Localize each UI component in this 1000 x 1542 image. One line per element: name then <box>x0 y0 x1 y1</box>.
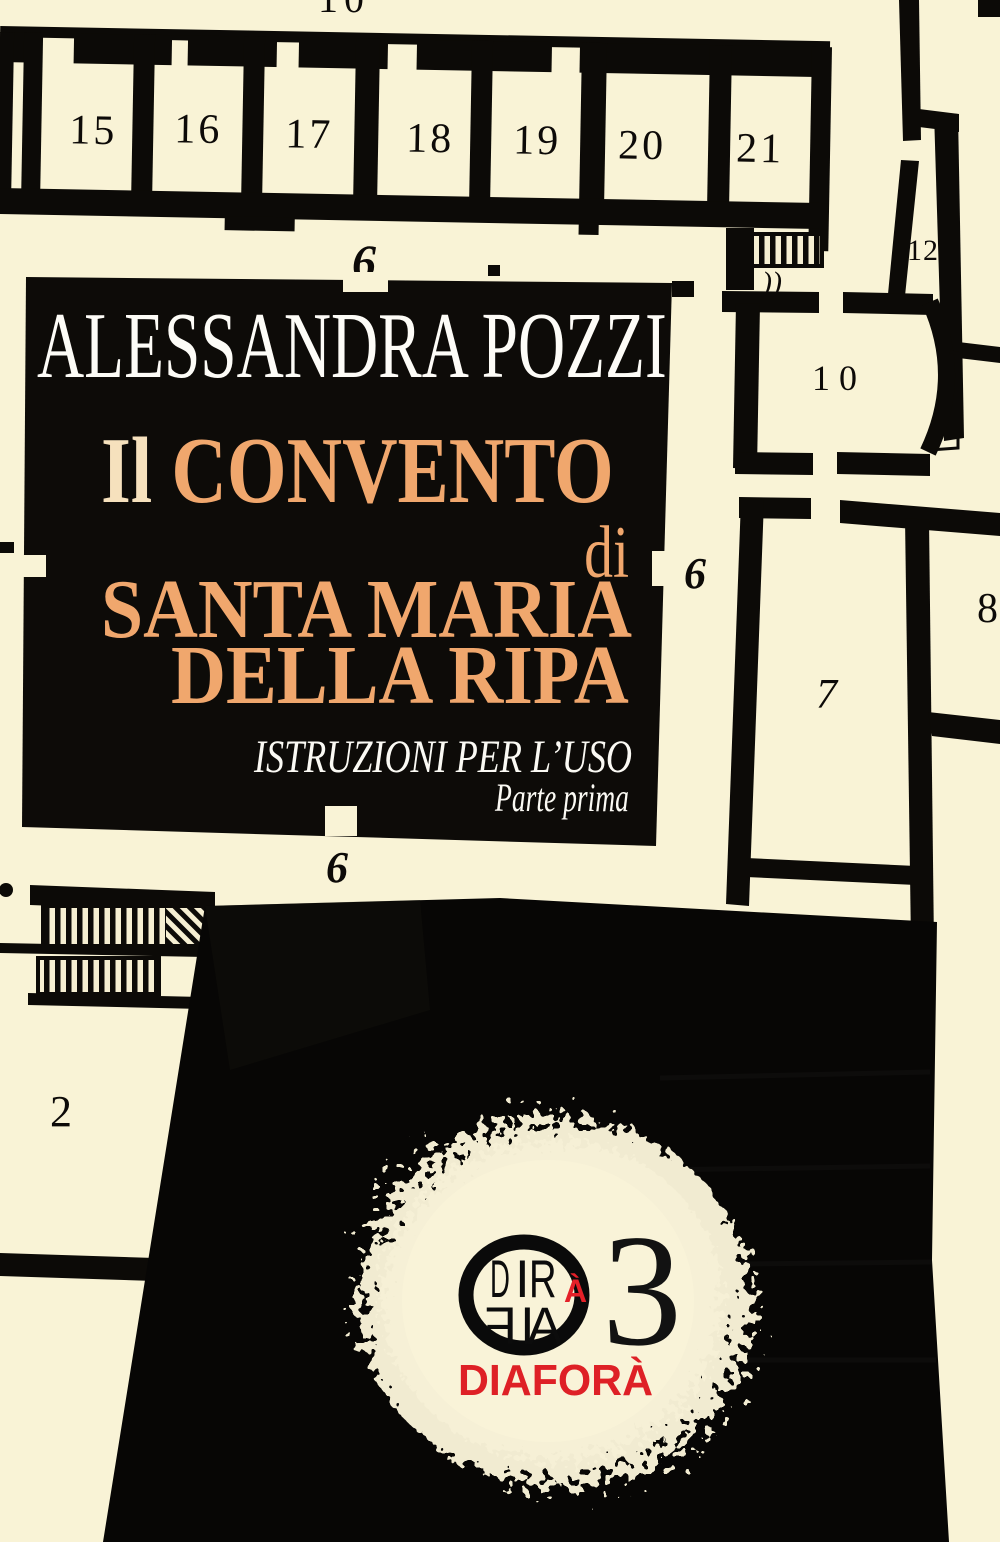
svg-text:Parte prima: Parte prima <box>494 776 629 820</box>
svg-text:À: À <box>564 1273 587 1309</box>
svg-text:15: 15 <box>69 107 118 154</box>
svg-text:18: 18 <box>406 115 455 162</box>
svg-text:12: 12 <box>907 234 939 267</box>
svg-text:8: 8 <box>977 586 998 632</box>
svg-text:)): )) <box>760 266 782 299</box>
svg-text:2: 2 <box>50 1087 72 1136</box>
svg-text:6: 6 <box>684 549 706 598</box>
svg-text:3: 3 <box>602 1201 682 1379</box>
svg-text:19: 19 <box>513 117 562 164</box>
svg-text:21: 21 <box>736 126 785 173</box>
svg-text:7: 7 <box>816 672 839 718</box>
svg-text:16: 16 <box>174 106 223 153</box>
svg-text:17: 17 <box>285 111 334 158</box>
svg-text:6: 6 <box>326 843 348 892</box>
svg-text:DIAFORÀ: DIAFORÀ <box>458 1356 653 1405</box>
svg-text:10: 10 <box>812 358 866 398</box>
svg-text:Il CONVENTO: Il CONVENTO <box>101 419 614 523</box>
svg-text:10: 10 <box>318 0 370 21</box>
svg-text:A: A <box>527 1297 563 1356</box>
svg-text:DELLA RIPA: DELLA RIPA <box>171 630 629 722</box>
svg-text:20: 20 <box>618 122 667 169</box>
svg-text:ALESSANDRA POZZI: ALESSANDRA POZZI <box>37 293 667 398</box>
svg-text:F: F <box>485 1297 517 1356</box>
